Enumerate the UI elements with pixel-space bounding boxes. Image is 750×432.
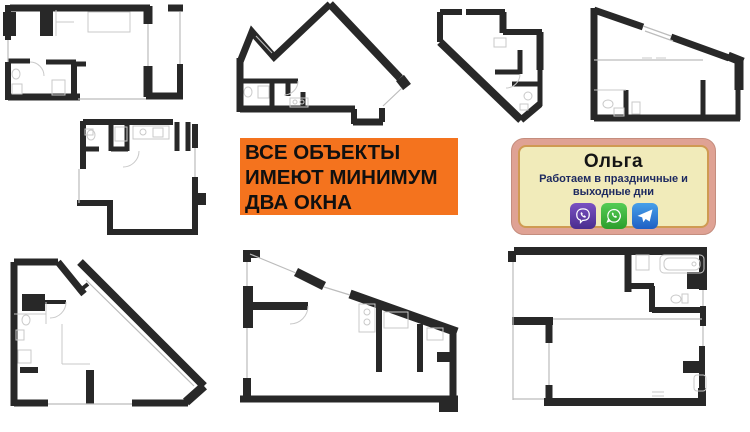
floor-plan-6 bbox=[428, 4, 548, 131]
floor-plan-1-drawing bbox=[0, 0, 190, 114]
floor-plan-5-drawing bbox=[224, 242, 466, 432]
slogan-line: ИМЕЮТ МИНИМУМ bbox=[245, 165, 458, 190]
slogan-line: ВСЕ ОБЪЕКТЫ bbox=[245, 140, 458, 165]
slogan-banner: ВСЕ ОБЪЕКТЫ ИМЕЮТ МИНИМУМ ДВА ОКНА bbox=[240, 138, 458, 215]
messenger-icons-row bbox=[520, 203, 707, 229]
contact-subtitle-line-2: выходные дни bbox=[520, 186, 707, 199]
floor-plan-8-drawing bbox=[508, 242, 748, 430]
floor-plan-2-drawing bbox=[55, 115, 237, 255]
contact-subtitle-line-1: Работаем в праздничные и bbox=[520, 173, 707, 186]
telegram-glyph bbox=[635, 206, 655, 226]
floor-plan-2 bbox=[55, 115, 237, 260]
contact-card: Ольга Работаем в праздничные и выходные … bbox=[511, 138, 716, 235]
floor-plan-6-drawing bbox=[428, 4, 548, 126]
viber-glyph bbox=[573, 206, 593, 226]
slogan-line: ДВА ОКНА bbox=[245, 190, 458, 215]
floor-plan-1 bbox=[0, 0, 190, 119]
floor-plan-3 bbox=[2, 254, 217, 432]
floor-plan-4 bbox=[226, 0, 421, 137]
contact-card-panel: Ольга Работаем в праздничные и выходные … bbox=[518, 145, 709, 228]
floor-plan-5 bbox=[224, 242, 466, 432]
whatsapp-icon[interactable] bbox=[601, 203, 627, 229]
whatsapp-glyph bbox=[604, 206, 624, 226]
telegram-icon[interactable] bbox=[632, 203, 658, 229]
real-estate-collage: ВСЕ ОБЪЕКТЫ ИМЕЮТ МИНИМУМ ДВА ОКНА Ольга… bbox=[0, 0, 750, 432]
contact-name: Ольга bbox=[520, 151, 707, 173]
floor-plan-4-drawing bbox=[226, 0, 421, 132]
viber-icon[interactable] bbox=[570, 203, 596, 229]
floor-plan-8 bbox=[508, 242, 748, 432]
floor-plan-7-drawing bbox=[586, 2, 748, 128]
floor-plan-7 bbox=[586, 2, 748, 133]
floor-plan-3-drawing bbox=[2, 254, 217, 432]
